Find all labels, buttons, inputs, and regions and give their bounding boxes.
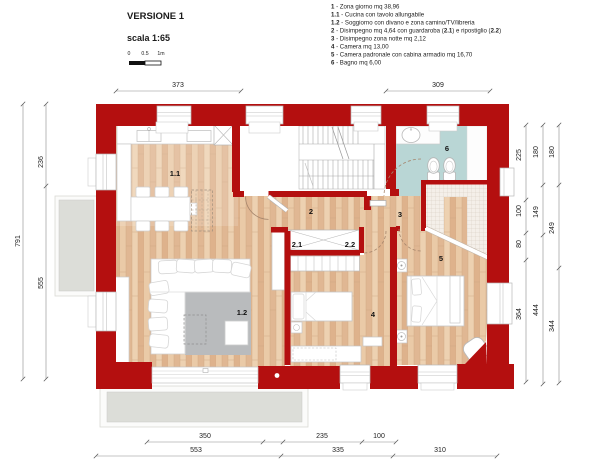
svg-text:791: 791 xyxy=(15,235,22,247)
svg-text:309: 309 xyxy=(432,82,444,89)
svg-text:6 - Bagno mq 6,00: 6 - Bagno mq 6,00 xyxy=(331,60,382,67)
svg-text:236: 236 xyxy=(38,156,45,168)
svg-text:1.1 - Cucina con tavolo allung: 1.1 - Cucina con tavolo allungabile xyxy=(331,11,425,18)
svg-text:VERSIONE 1: VERSIONE 1 xyxy=(127,11,185,22)
svg-text:364: 364 xyxy=(516,308,523,320)
svg-text:1.1: 1.1 xyxy=(170,169,180,178)
svg-text:2 - Disimpegno mq 4,64 con gua: 2 - Disimpegno mq 4,64 con guardaroba (2… xyxy=(331,28,501,35)
svg-text:180: 180 xyxy=(533,146,540,158)
svg-text:350: 350 xyxy=(199,433,211,440)
svg-text:310: 310 xyxy=(434,447,446,454)
svg-text:1.2: 1.2 xyxy=(237,308,247,317)
svg-text:6: 6 xyxy=(445,144,449,153)
svg-text:444: 444 xyxy=(533,304,540,316)
svg-text:1m: 1m xyxy=(157,51,164,57)
svg-text:100: 100 xyxy=(373,433,385,440)
svg-text:5: 5 xyxy=(439,254,443,263)
svg-text:80: 80 xyxy=(516,240,523,248)
svg-text:555: 555 xyxy=(38,277,45,289)
svg-text:0: 0 xyxy=(128,51,131,57)
svg-text:225: 225 xyxy=(516,149,523,161)
svg-text:4 - Camera mq 13,00: 4 - Camera mq 13,00 xyxy=(331,44,389,51)
svg-text:553: 553 xyxy=(190,447,202,454)
svg-text:2: 2 xyxy=(309,207,313,216)
svg-text:1.2 - Soggiorno con divano e z: 1.2 - Soggiorno con divano e zona camino… xyxy=(331,19,475,26)
svg-text:335: 335 xyxy=(332,447,344,454)
svg-text:3 - Disimpegno zona notte mq 2: 3 - Disimpegno zona notte mq 2,12 xyxy=(331,36,426,43)
svg-text:373: 373 xyxy=(172,82,184,89)
svg-text:100: 100 xyxy=(516,205,523,217)
svg-text:5 - Camera padronale con cabin: 5 - Camera padronale con cabina armadio … xyxy=(331,52,473,59)
svg-text:scala 1:65: scala 1:65 xyxy=(127,33,170,43)
svg-text:1 - Zona giorno mq 38,96: 1 - Zona giorno mq 38,96 xyxy=(331,3,400,10)
svg-text:149: 149 xyxy=(533,206,540,218)
svg-text:249: 249 xyxy=(549,222,556,234)
svg-text:2.1: 2.1 xyxy=(292,240,302,249)
svg-text:235: 235 xyxy=(316,433,328,440)
svg-text:344: 344 xyxy=(549,320,556,332)
svg-text:0.5: 0.5 xyxy=(141,51,148,57)
svg-text:180: 180 xyxy=(549,146,556,158)
svg-text:3: 3 xyxy=(398,210,402,219)
svg-text:2.2: 2.2 xyxy=(345,240,355,249)
